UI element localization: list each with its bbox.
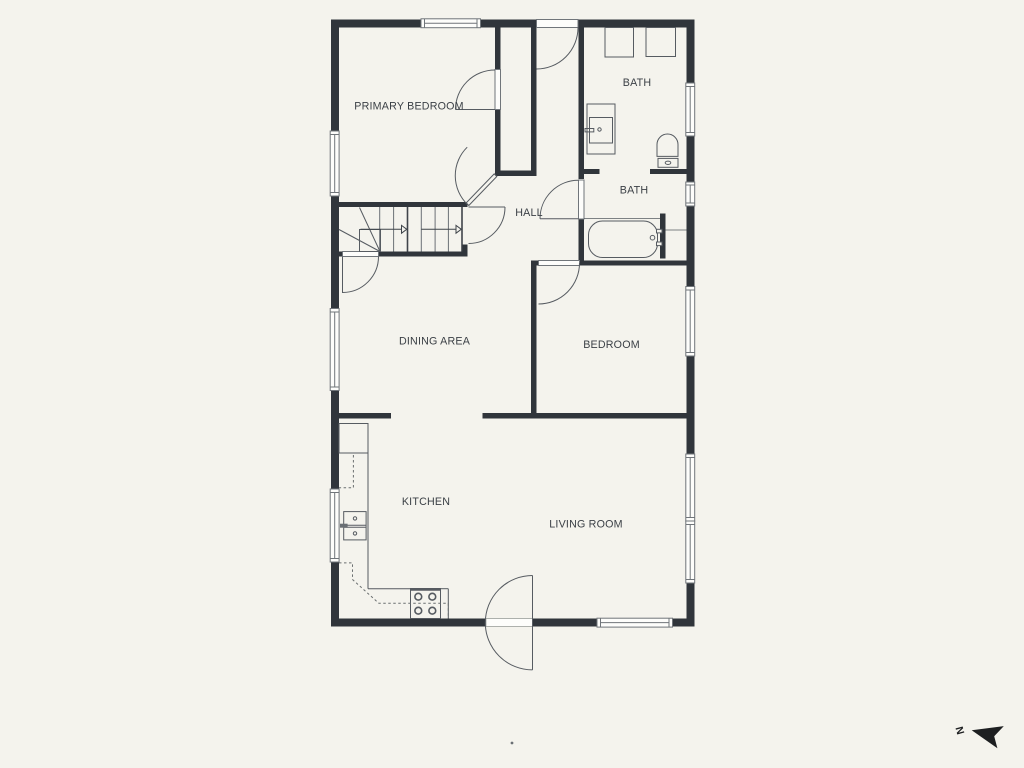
- svg-text:HALL: HALL: [515, 207, 543, 219]
- svg-text:PRIMARY BEDROOM: PRIMARY BEDROOM: [354, 101, 464, 113]
- svg-text:DINING AREA: DINING AREA: [399, 336, 471, 348]
- svg-text:BEDROOM: BEDROOM: [583, 339, 640, 351]
- svg-text:BATH: BATH: [620, 184, 649, 196]
- svg-text:BATH: BATH: [623, 77, 652, 89]
- svg-text:LIVING ROOM: LIVING ROOM: [549, 519, 622, 531]
- svg-text:KITCHEN: KITCHEN: [402, 496, 450, 508]
